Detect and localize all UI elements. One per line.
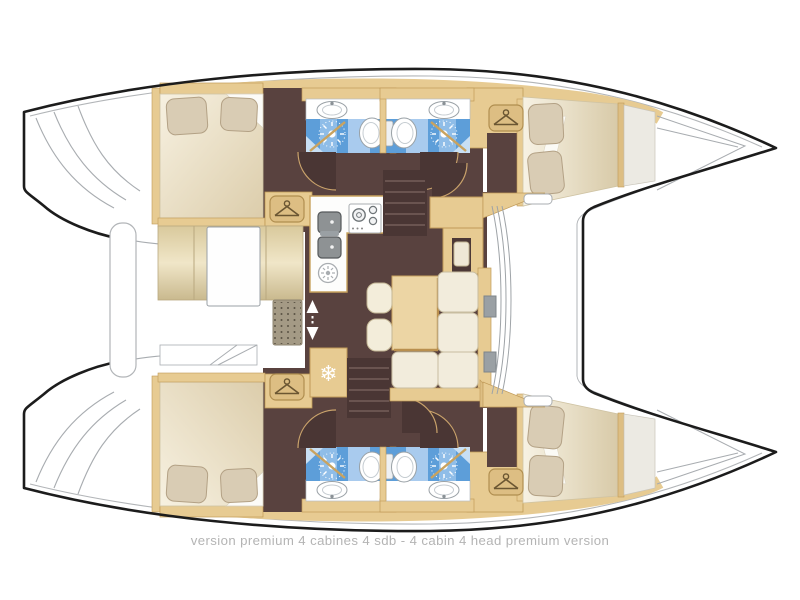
hatch bbox=[484, 352, 496, 372]
cockpit bbox=[110, 223, 303, 377]
snowflake-icon: ❄ bbox=[319, 362, 337, 387]
deck-hatch bbox=[524, 194, 552, 204]
deck-hatch bbox=[524, 396, 552, 406]
fridge: ❄ bbox=[310, 348, 347, 397]
helm-seat bbox=[160, 345, 257, 365]
stove-icon bbox=[349, 204, 381, 233]
stool bbox=[367, 319, 392, 351]
stairs-port bbox=[383, 170, 427, 236]
catamaran-floor-plan: ❄ bbox=[0, 0, 800, 600]
hatch bbox=[484, 296, 496, 317]
round-hob-icon bbox=[319, 264, 338, 283]
boat-plan-svg: ❄ bbox=[0, 0, 800, 600]
stool bbox=[367, 283, 392, 313]
galley-sink-icon bbox=[318, 212, 341, 258]
aft-platform bbox=[110, 223, 136, 377]
cockpit-table bbox=[207, 227, 260, 306]
stairs-starboard bbox=[347, 358, 391, 418]
saloon-table bbox=[392, 276, 438, 350]
plan-caption: version premium 4 cabines 4 sdb - 4 cabi… bbox=[0, 533, 800, 548]
